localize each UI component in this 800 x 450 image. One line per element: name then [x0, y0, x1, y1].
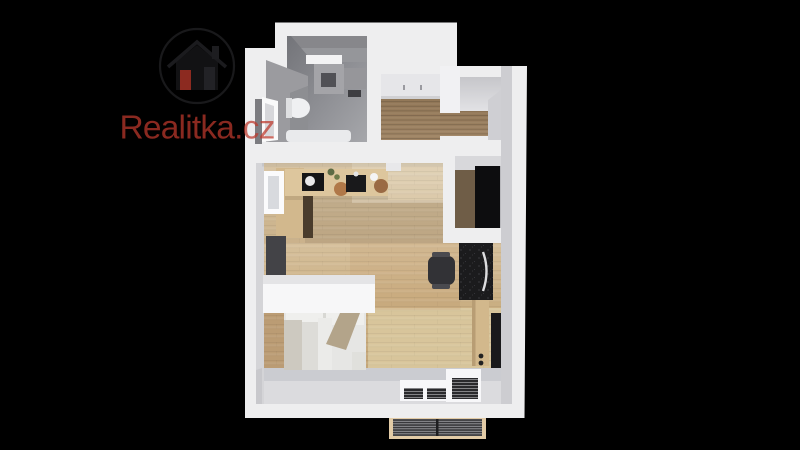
svg-text:Realitka.cz: Realitka.cz	[120, 110, 275, 147]
